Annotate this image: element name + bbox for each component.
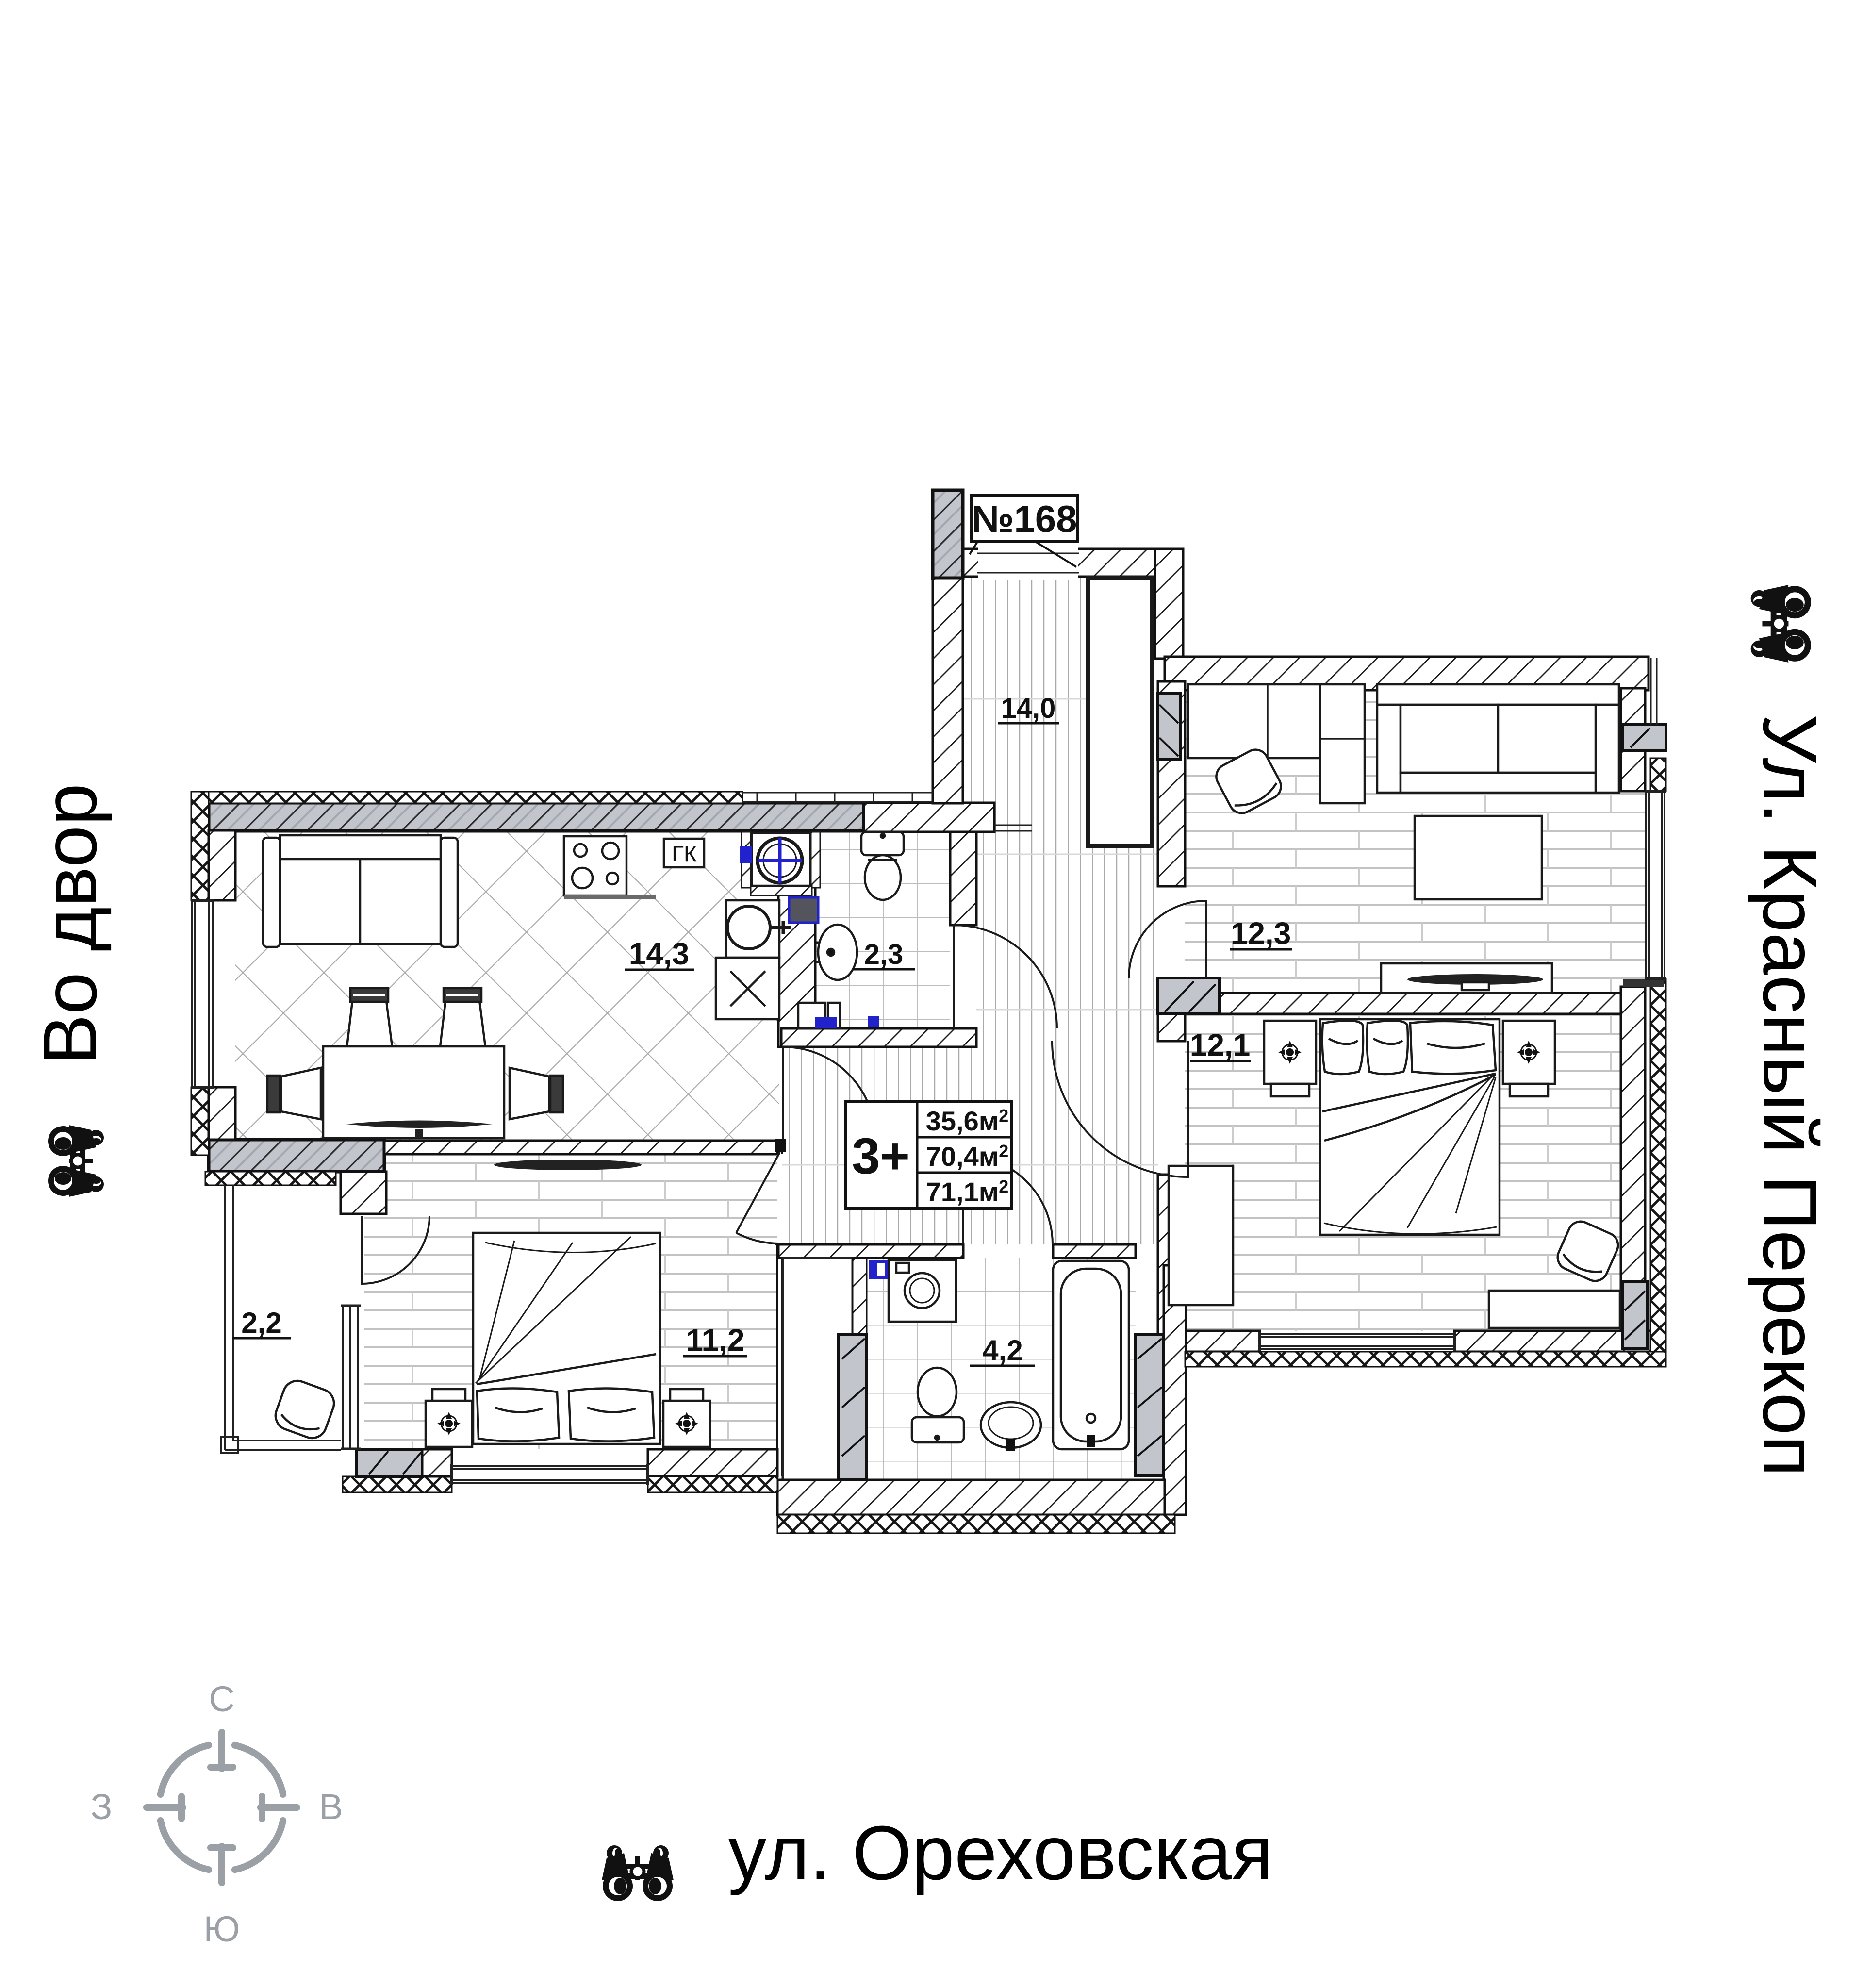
svg-text:35,6м2: 35,6м2 <box>926 1106 1008 1136</box>
svg-text:№168: №168 <box>972 497 1077 540</box>
svg-text:В: В <box>319 1787 343 1827</box>
svg-text:11,2: 11,2 <box>686 1323 744 1358</box>
svg-text:Ул. Красный Перекоп: Ул. Красный Перекоп <box>1747 714 1832 1476</box>
svg-text:Во двор: Во двор <box>28 783 113 1065</box>
svg-text:4,2: 4,2 <box>982 1334 1022 1367</box>
svg-text:З: З <box>91 1787 113 1827</box>
svg-text:12,1: 12,1 <box>1190 1027 1251 1062</box>
svg-text:71,1м2: 71,1м2 <box>926 1176 1008 1207</box>
svg-text:70,4м2: 70,4м2 <box>926 1141 1008 1172</box>
svg-text:14,3: 14,3 <box>629 936 690 971</box>
svg-text:ГК: ГК <box>672 841 697 866</box>
svg-text:ул. Ореховская: ул. Ореховская <box>728 1810 1273 1896</box>
svg-text:14,0: 14,0 <box>1001 693 1056 724</box>
svg-text:2,3: 2,3 <box>864 939 904 970</box>
svg-text:12,3: 12,3 <box>1231 916 1291 951</box>
svg-text:2,2: 2,2 <box>241 1307 281 1339</box>
svg-text:С: С <box>209 1679 234 1719</box>
svg-text:Ю: Ю <box>204 1909 240 1949</box>
svg-text:3+: 3+ <box>852 1128 910 1185</box>
